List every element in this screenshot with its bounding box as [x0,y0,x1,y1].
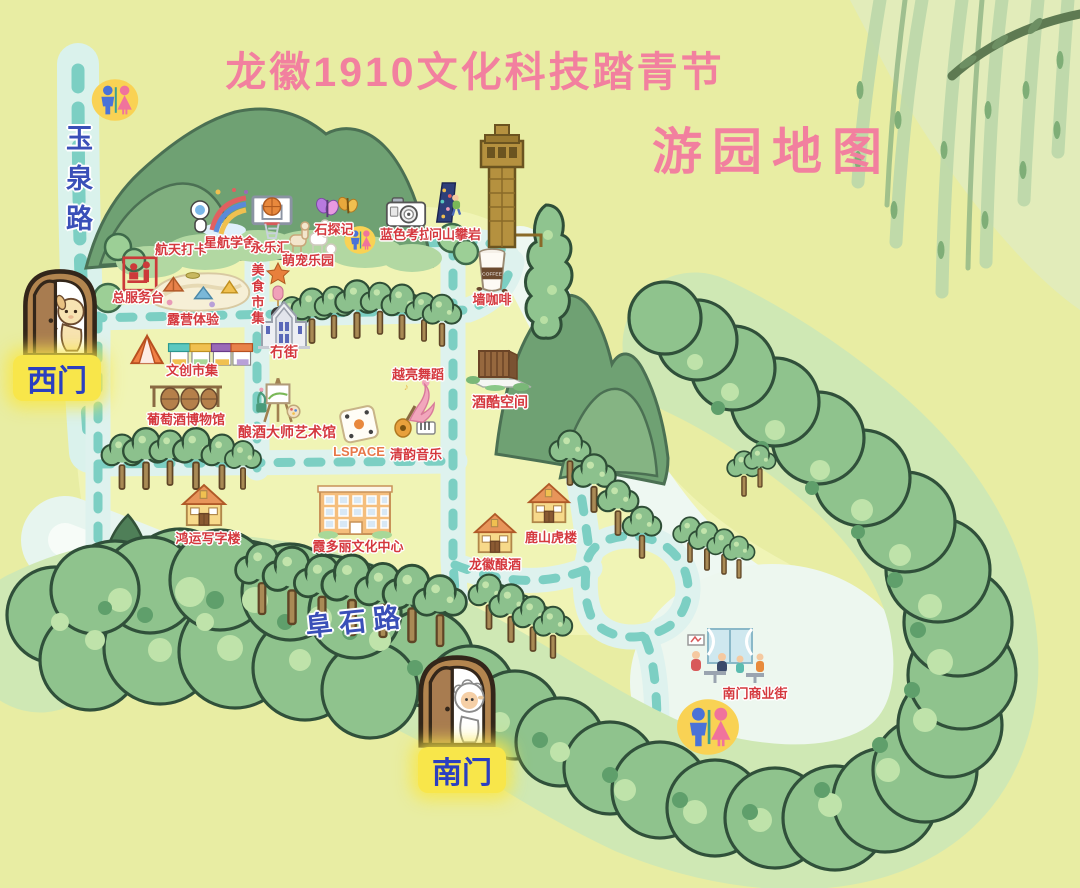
poi-label-luying-tiyan: 露营体验 [167,309,219,328]
restroom-northwest-icon [91,78,139,123]
poi-label-mengchong-leyuan: 萌宠乐园 [282,250,334,269]
poi-label-yueliang-wudao: 越亮舞蹈 [392,364,444,383]
south-gate-sheep-door-icon [414,650,500,750]
park-map: 龙徽1910文化科技踏青节 游园地图 玉泉路 阜石路 航天打卡星航学舍永乐汇石探… [0,0,1080,888]
road-label-yuquan: 玉泉路 [58,124,97,244]
poi-label-zong-fuwutai: 总服务台 [112,287,164,306]
wine-barrels-icon [146,377,226,413]
poi-label-hongyun-xiezilou: 鸿运写字楼 [175,528,240,547]
street-scene-icon [682,625,774,687]
poi-label-mao-jie: 冇街 [270,342,298,362]
poi-label-niangjiu-dashi: 酿酒大师艺术馆 [238,422,336,442]
dice-icon [334,402,386,446]
climbing-wall-icon [433,181,461,224]
coffee-cup-icon: COFFEE [476,246,509,293]
poi-label-qingyun-yinyue: 清韵音乐 [390,444,442,463]
house-icon [183,483,225,529]
poi-label-lanse-kaola: 蓝色考拉 [380,224,432,243]
south-gate-label: 南门 [418,747,506,793]
poi-label-meishi-shiji: 美食市集 [248,263,267,327]
background-art [0,0,1080,888]
poi-label-nanmen-shangyejie: 南门商业街 [722,683,787,702]
restroom-south-icon [676,697,740,757]
poi-label-jiuku-kongjian: 酒酷空间 [472,392,528,412]
poi-label-longhui-niangjiu: 龙徽酿酒 [469,554,521,573]
poi-label-lushan-hulou: 鹿山虎楼 [525,527,577,546]
poi-label-wenshan-panyan: 问山攀岩 [429,224,481,243]
map-subtitle: 游园地图 [652,112,892,184]
dancer-icon: ♪ [402,377,440,426]
poi-label-xinghang-xueshe: 星航学舍 [204,232,256,251]
poi-label-hangtian-daka: 航天打卡 [155,239,207,258]
poi-label-shitanji: 石探记 [314,219,353,238]
west-gate-label: 西门 [13,355,101,401]
west-gate-puppy-door-icon [19,264,101,360]
space-playground-icon [188,186,252,238]
poi-label-putaojiu-bowuguan: 葡萄酒博物馆 [147,409,225,428]
art-easel-icon [256,372,300,426]
poi-label-xiaduoli-center: 霞多丽文化中心 [312,536,403,555]
poi-label-wenchuang-shiji: 文创市集 [166,360,218,379]
poi-label-qiang-kafei: 墙咖啡 [472,289,511,308]
house-icon [529,482,569,526]
poi-label-lspace: LSPACE [333,444,385,459]
culture-center-icon [316,482,394,538]
map-title: 龙徽1910文化科技踏青节 [150,38,800,98]
house-icon [475,512,515,556]
svg-text:COFFEE: COFFEE [482,271,502,277]
modern-building-icon [465,347,533,389]
